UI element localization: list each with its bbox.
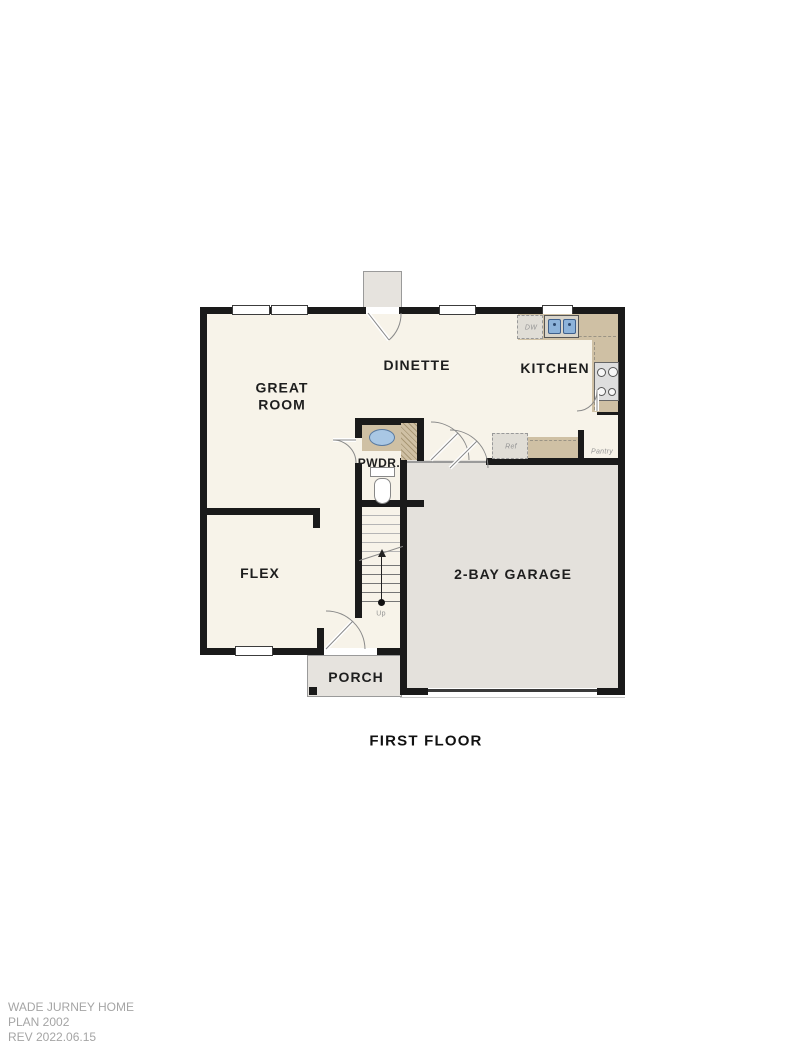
vanity-sink: [369, 429, 395, 446]
window-great-room-2: [271, 305, 308, 315]
stair-arrow-dot: [378, 599, 385, 606]
footer-company: WADE JURNEY HOME: [8, 1000, 134, 1015]
wall-left: [200, 307, 207, 655]
plan-title: FIRST FLOOR: [369, 733, 482, 750]
rear-door-opening: [366, 307, 399, 314]
garage-door-line: [428, 689, 597, 692]
pantry-label: Pantry: [591, 449, 613, 456]
stair-arrow-head: [378, 549, 386, 557]
sink-drain-right: [568, 323, 571, 326]
utility-chase: [401, 423, 417, 460]
window-great-room-1: [232, 305, 270, 315]
wall-pantry-left-stub: [578, 430, 584, 458]
sink-bowl-right: [563, 319, 576, 334]
stairs-up-label: Up: [376, 611, 386, 618]
wall-pwdr-bottom: [355, 500, 424, 507]
wall-flex-divider-stub: [313, 508, 320, 528]
rear-stoop-area: [363, 271, 402, 308]
stove: [594, 362, 619, 401]
refrigerator: Ref: [492, 433, 528, 459]
wall-garage-top: [486, 458, 618, 465]
burner-2: [608, 367, 618, 377]
wall-front-door-jamb: [317, 628, 324, 648]
window-flex: [235, 646, 273, 656]
flex-room-label: FLEX: [240, 565, 280, 581]
kitchen-sink: [544, 315, 579, 338]
wall-garage-left: [400, 458, 407, 695]
stair-arrow-line: [381, 556, 382, 602]
wall-garage-bottom-right: [597, 688, 625, 695]
floor-plan-page: DW Ref Pantry Up: [0, 0, 810, 1048]
wall-flex-divider: [207, 508, 320, 515]
footer-plan: PLAN 2002: [8, 1015, 134, 1030]
garage-entry-threshold: [407, 461, 486, 463]
burner-3: [597, 387, 606, 396]
powder-room-label: PWDR.: [358, 456, 401, 470]
refrigerator-label: Ref: [505, 444, 517, 451]
burner-4: [608, 388, 616, 396]
wall-garage-bottom-left: [400, 688, 428, 695]
kitchen-label: KITCHEN: [520, 360, 589, 376]
dishwasher: DW: [517, 315, 543, 339]
burner-1: [597, 368, 606, 377]
garage-apron-line: [400, 697, 625, 698]
sink-drain-left: [553, 323, 556, 326]
toilet-bowl: [374, 478, 391, 504]
dinette-label: DINETTE: [384, 357, 451, 373]
footer-revision: REV 2022.06.15: [8, 1030, 134, 1045]
great-room-label: GREAT ROOM: [238, 379, 326, 412]
porch-label: PORCH: [328, 669, 384, 685]
wall-right: [618, 307, 625, 695]
plan-footer: WADE JURNEY HOME PLAN 2002 REV 2022.06.1…: [8, 1000, 134, 1045]
counter-edge-bottom: [530, 440, 576, 441]
garage-label: 2-BAY GARAGE: [454, 566, 572, 582]
front-door-opening: [324, 648, 377, 655]
window-dinette: [439, 305, 476, 315]
dishwasher-label: DW: [525, 325, 537, 332]
porch-post: [309, 687, 317, 695]
wall-pwdr-right: [417, 418, 424, 463]
sink-bowl-left: [548, 319, 561, 334]
